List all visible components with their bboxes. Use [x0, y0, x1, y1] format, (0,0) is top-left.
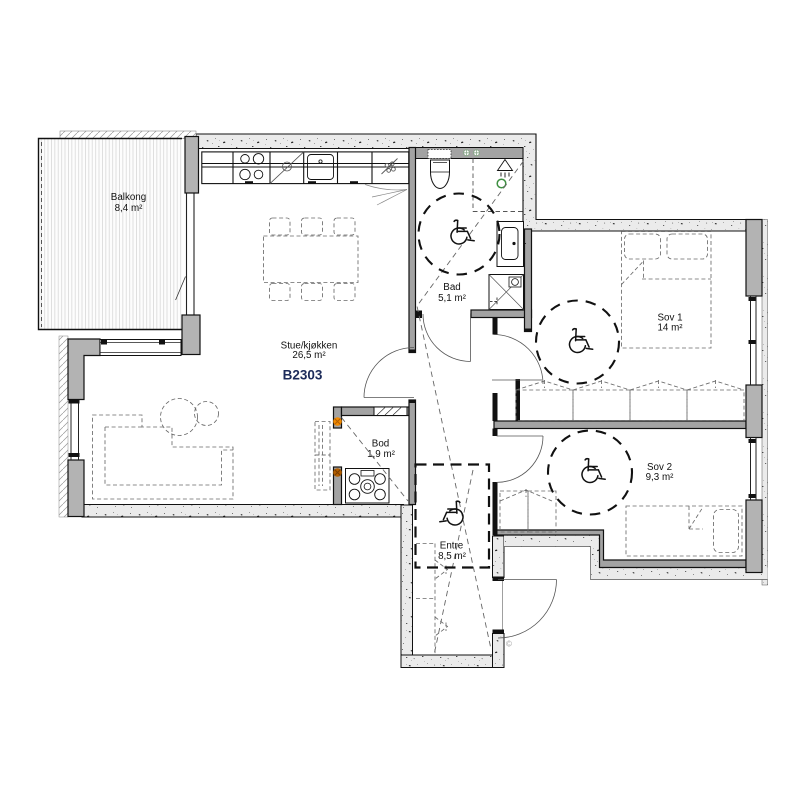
svg-text:9,3 m²: 9,3 m² — [646, 472, 675, 483]
svg-text:Balkong: Balkong — [111, 192, 146, 203]
svg-text:©: © — [506, 640, 512, 649]
svg-text:14 m²: 14 m² — [657, 323, 683, 334]
svg-text:Entre: Entre — [440, 541, 464, 552]
svg-text:26,5 m²: 26,5 m² — [292, 350, 326, 361]
svg-text:8,4 m²: 8,4 m² — [115, 203, 144, 214]
svg-text:B2303: B2303 — [283, 368, 323, 383]
svg-text:1,9 m²: 1,9 m² — [367, 449, 396, 460]
svg-text:5,1 m²: 5,1 m² — [438, 293, 467, 304]
svg-text:Bod: Bod — [372, 439, 389, 450]
svg-text:8,5 m²: 8,5 m² — [438, 551, 467, 562]
svg-text:Bad: Bad — [443, 282, 460, 293]
